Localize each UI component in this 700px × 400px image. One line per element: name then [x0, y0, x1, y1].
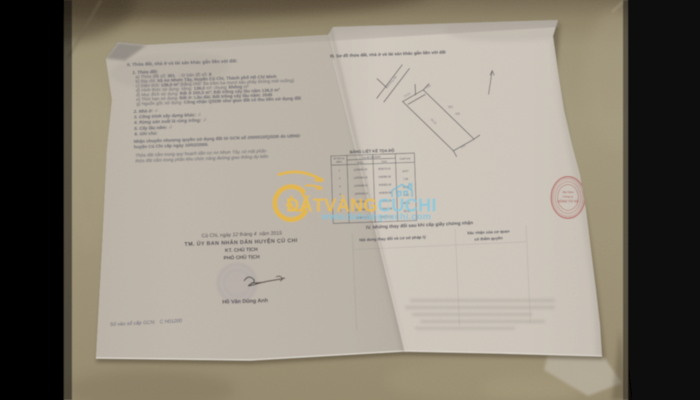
svg-text:www.datvangcuchi.com: www.datvangcuchi.com: [321, 212, 432, 222]
